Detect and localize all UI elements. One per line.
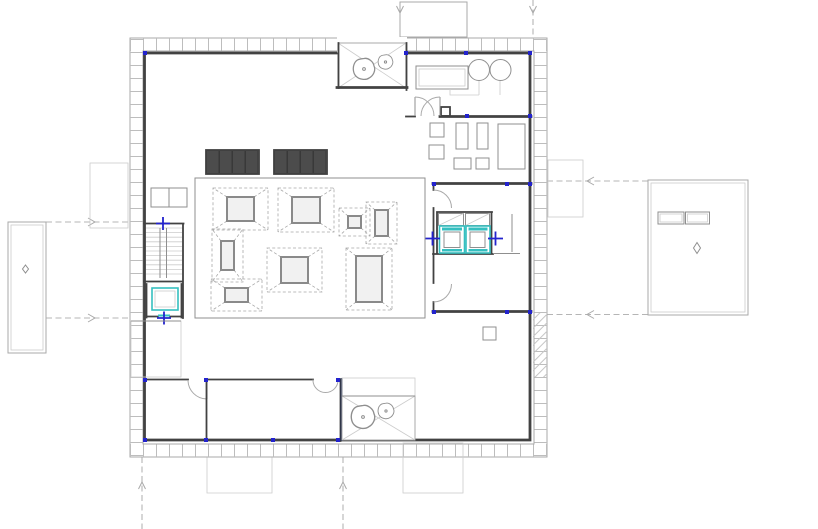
gravel-bed-inner-edge	[11, 225, 43, 350]
exterior-hatch-block-left	[90, 163, 128, 228]
hall-table	[169, 188, 187, 207]
stair-treads	[146, 228, 182, 274]
plant-symbol	[23, 265, 29, 273]
registration-cross-icon	[157, 312, 171, 325]
tree-icon	[378, 403, 394, 419]
side-table	[476, 158, 489, 169]
garden-left	[8, 222, 46, 353]
column-marker	[483, 327, 496, 340]
chair	[477, 123, 488, 149]
kitchen	[406, 60, 531, 117]
skylight	[213, 188, 268, 230]
skylight	[278, 188, 334, 232]
sink-circle	[490, 60, 511, 81]
skylight	[339, 208, 370, 236]
bottom-rooms	[144, 378, 342, 441]
hatch-void	[90, 163, 128, 228]
gravel-bed	[8, 222, 46, 353]
skylight	[211, 279, 262, 311]
door-swing-arc	[434, 190, 452, 208]
skylight	[267, 248, 322, 292]
door-swing-arc	[188, 380, 207, 399]
masonry-course-left	[130, 38, 143, 457]
kitchen-counter	[416, 66, 468, 89]
skylight	[366, 202, 397, 244]
door-swing-arc	[434, 284, 452, 302]
tree-icon	[378, 55, 393, 69]
washing-machine	[440, 226, 465, 253]
stair-stringers	[160, 228, 167, 278]
canopy-outline-right	[548, 160, 583, 217]
chair	[456, 123, 468, 149]
courtyard-bottom	[342, 378, 415, 440]
elevator-lift	[147, 284, 182, 325]
bathroom-laundry	[425, 184, 531, 341]
sink-circle	[469, 60, 490, 81]
door-swing-arc	[313, 380, 338, 393]
tree-icon	[351, 405, 374, 428]
canopy-outline-top	[400, 2, 467, 37]
hatch-wall-section	[533, 313, 547, 377]
door-leaf	[415, 97, 440, 116]
floor-plan-page	[0, 0, 818, 529]
washing-machine	[466, 226, 490, 253]
roof-deck	[195, 178, 425, 318]
floor-plan-canvas	[0, 0, 818, 529]
canopy-outline-bottom	[207, 457, 272, 493]
skylight	[346, 248, 392, 310]
hatch-band	[342, 378, 415, 396]
stool	[430, 123, 444, 137]
hall-table	[151, 188, 169, 207]
courtyard-top	[337, 37, 407, 90]
closet-shelf-lines	[493, 214, 520, 254]
garden-right	[648, 180, 748, 315]
tree-icon	[353, 58, 374, 79]
door-jamb-block	[441, 107, 450, 116]
stool	[429, 145, 444, 159]
door-swing-arc	[415, 97, 440, 116]
masonry-course-bottom	[130, 444, 547, 457]
roof-panels	[206, 150, 327, 174]
table	[498, 124, 525, 169]
living-area-furniture	[429, 123, 525, 169]
masonry-course-right	[534, 38, 547, 457]
skylight	[212, 229, 243, 282]
side-table	[454, 158, 471, 169]
plant-symbol	[694, 243, 701, 254]
